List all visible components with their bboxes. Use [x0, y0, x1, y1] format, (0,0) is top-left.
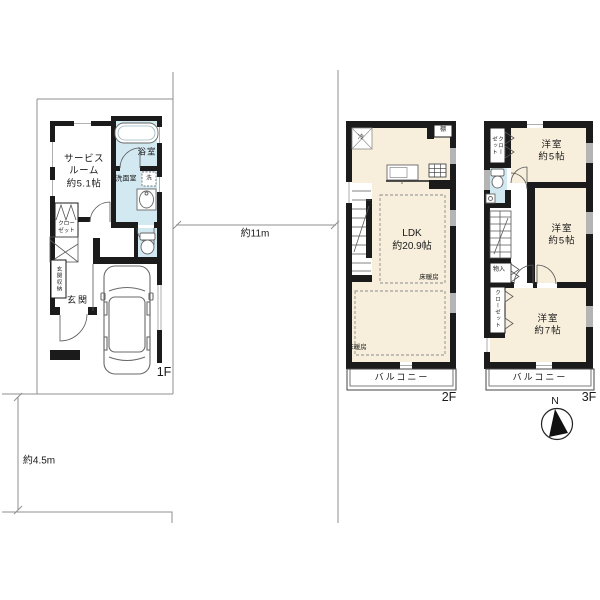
- shelf-label: 棚: [440, 127, 446, 135]
- floor-heating-upper-label: 床暖房: [419, 274, 439, 282]
- washer-label: 洗: [146, 175, 152, 182]
- stove-icon: [429, 164, 446, 177]
- bath-label: 浴室: [137, 146, 156, 157]
- closet-top-label-3f: クロー ゼット: [491, 136, 503, 156]
- north-label: N: [551, 395, 559, 409]
- balcony-label-3f: バルコニー: [513, 372, 568, 384]
- floor-plan-canvas: [0, 0, 600, 600]
- depth-dimension-label: 約4.5m: [23, 455, 55, 468]
- service-room-label: サービス ルーム 約5.1帖: [64, 153, 104, 190]
- width-dimension-label: 約11m: [241, 228, 270, 241]
- entrance-label: 玄関: [67, 295, 89, 307]
- washbasin-icon: [137, 189, 156, 210]
- car-icon: [101, 266, 153, 374]
- room-5-top-label: 洋室 約5帖: [538, 140, 565, 165]
- washroom-label: 洗面室: [116, 174, 137, 183]
- floor-heating-lower-label: 床暖房: [347, 344, 367, 352]
- ldk-label: LDK 約20.9帖: [392, 227, 431, 253]
- floor-label-1f: 1F: [157, 364, 172, 380]
- toilet-icon-1f: [140, 233, 155, 254]
- entrance-storage-label: 玄関収納: [55, 266, 61, 292]
- closet-bottom-label-3f: クローゼット: [494, 290, 500, 329]
- storage-label-3f: 物入: [493, 267, 505, 275]
- closet-label-1f: クロー ゼット: [58, 221, 75, 235]
- floor-label-3f: 3F: [582, 389, 597, 405]
- room-7-area-left: [490, 338, 505, 362]
- fridge-label: 冷: [358, 135, 364, 143]
- floor-plan-page: サービス ルーム 約5.1帖 浴室 洗面室 洗 クロー ゼット 玄関収納 玄関 …: [0, 0, 600, 600]
- room-7-label: 洋室 約7帖: [534, 314, 561, 339]
- floor-label-2f: 2F: [442, 389, 457, 405]
- dimension-line-depth: [14, 393, 22, 514]
- balcony-label-2f: バルコニー: [375, 372, 430, 384]
- site-wall-block: [50, 350, 80, 360]
- garage-opening: [158, 285, 161, 330]
- compass-icon: [542, 409, 573, 440]
- kitchen-counter: [386, 164, 450, 184]
- stairs-3f: [490, 211, 511, 258]
- bathtub-icon: [115, 123, 158, 143]
- room-5-mid-label: 洋室 約5帖: [548, 224, 575, 249]
